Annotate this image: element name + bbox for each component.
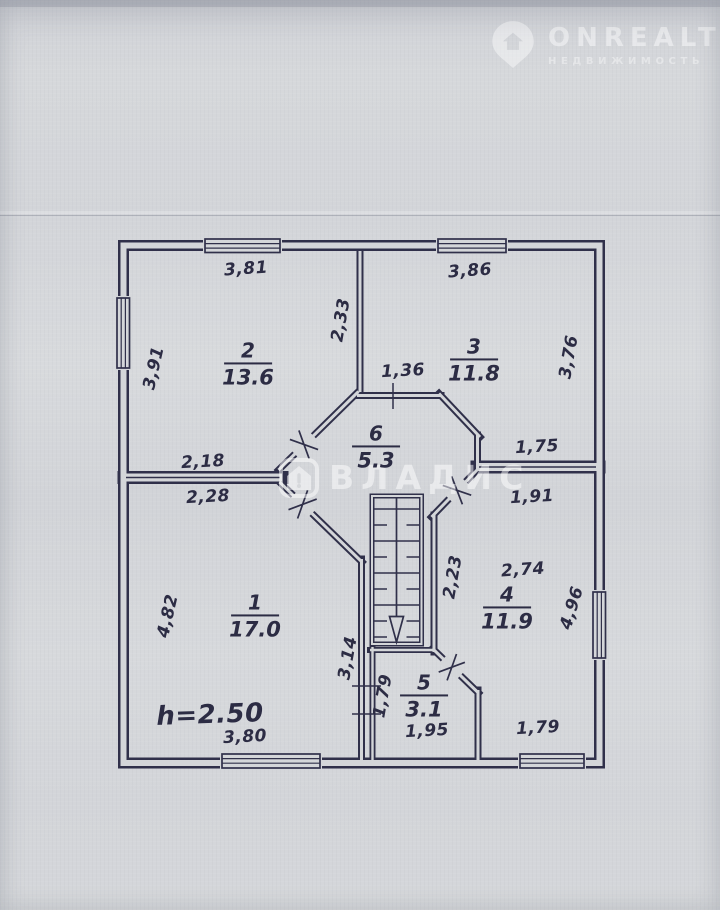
room-area: 5.3 (352, 448, 400, 472)
room-number: 4 (483, 584, 531, 608)
room-area: 3.1 (400, 697, 448, 721)
dimension-label: 1,79 (516, 717, 561, 739)
dimension-label: 2,18 (181, 451, 226, 473)
room-area: 11.8 (448, 361, 500, 385)
room-number: 2 (224, 340, 272, 364)
room-area: 11.9 (481, 609, 533, 633)
room-4-label: 411.9 (481, 584, 533, 633)
room-6-label: 65.3 (352, 423, 400, 472)
dimension-label: 1,36 (381, 360, 426, 382)
room-area: 17.0 (229, 617, 281, 641)
room-2-label: 213.6 (222, 340, 274, 389)
dimension-label: 3,86 (447, 259, 492, 282)
room-area: 13.6 (222, 365, 274, 389)
room-5-label: 53.1 (400, 672, 448, 721)
vladis-house-icon (279, 456, 319, 498)
dimension-label: 1,95 (405, 720, 450, 742)
room-1-label: 117.0 (229, 592, 281, 641)
floor-plan-photo: ONREALT НЕДВИЖИМОСТЬ (0, 0, 720, 910)
room-number: 3 (450, 336, 498, 360)
dimension-label: 1,91 (510, 486, 555, 508)
stair-direction-arrow (390, 617, 404, 643)
ceiling-height-label: h=2.50 (156, 698, 264, 732)
dimension-label: 2,74 (500, 558, 545, 581)
room-number: 5 (400, 672, 448, 696)
vladis-watermark: ВЛАДИС (279, 456, 530, 498)
dimension-label: 2,28 (186, 486, 231, 508)
room-3-label: 311.8 (448, 336, 500, 385)
dimension-label: 1,75 (515, 436, 560, 458)
dimension-label: 3,81 (223, 257, 268, 280)
room-number: 1 (231, 592, 279, 616)
staircase-symbol (374, 498, 420, 642)
room-number: 6 (352, 423, 400, 447)
